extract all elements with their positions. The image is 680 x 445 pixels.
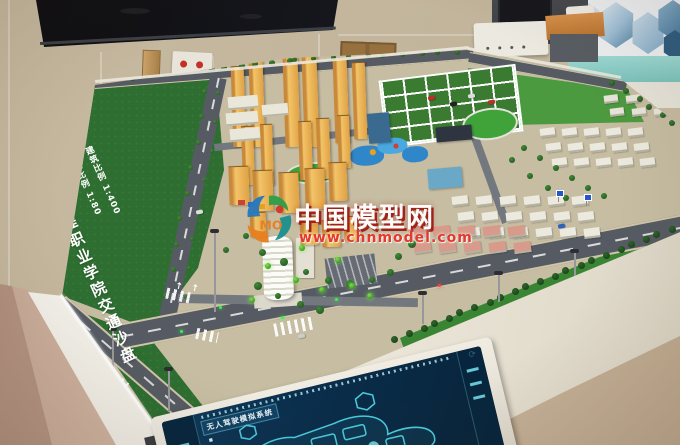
- tree: [196, 140, 201, 145]
- tree: [669, 226, 676, 233]
- tree: [316, 306, 324, 314]
- tree: [188, 165, 193, 170]
- tv-reflection: [240, 14, 262, 19]
- glass-building: [367, 112, 392, 144]
- tree: [522, 283, 529, 290]
- road-sign-blue: [584, 194, 592, 201]
- tree: [216, 91, 220, 95]
- tree: [349, 283, 355, 289]
- white-lowrise: [562, 127, 578, 138]
- tree: [259, 249, 266, 256]
- gold-tower: [352, 62, 368, 139]
- tree: [537, 278, 544, 285]
- machine-knob: [510, 46, 513, 49]
- tree: [643, 236, 650, 243]
- tree: [562, 267, 569, 274]
- street-lamp-pole: [168, 370, 170, 412]
- white-lowrise: [610, 107, 625, 117]
- white-lowrise: [618, 157, 634, 168]
- tree: [585, 185, 591, 191]
- tv-reflection: [120, 8, 150, 14]
- tree: [202, 178, 206, 182]
- tree: [623, 88, 629, 94]
- road-arrow: ↑: [190, 283, 199, 294]
- tree: [199, 114, 204, 119]
- watermark-site-url: www.chnmodel.com: [299, 230, 473, 246]
- tree: [471, 304, 478, 311]
- wall-tile-groove: [8, 0, 10, 286]
- tree: [202, 89, 207, 94]
- tree: [446, 315, 453, 322]
- pink-lowrise: [507, 225, 525, 238]
- street-lamp-head: [494, 271, 503, 275]
- tree: [249, 297, 255, 303]
- tree: [275, 293, 281, 299]
- tree: [171, 267, 176, 272]
- red-plug: [196, 61, 203, 68]
- model-car: [488, 99, 496, 104]
- white-lowrise: [568, 142, 584, 153]
- tree: [395, 253, 402, 260]
- school-building: [262, 103, 289, 117]
- photo-scene: ↑↑ 重庆电子工程职业学院交通沙盘 建筑比例 1:400 交通比例 1:80 无…: [0, 0, 680, 445]
- chnmodel-logo: MO: [240, 190, 298, 248]
- pink-lowrise: [513, 241, 531, 254]
- white-lowrise: [481, 211, 498, 223]
- tree: [325, 277, 332, 284]
- tree: [303, 269, 309, 275]
- tree: [213, 120, 217, 124]
- tree: [456, 309, 463, 316]
- white-lowrise: [535, 227, 552, 239]
- tree: [391, 336, 398, 343]
- white-lowrise: [559, 227, 576, 239]
- road-sign-blue: [556, 190, 564, 197]
- tree: [553, 165, 559, 171]
- white-lowrise: [499, 195, 516, 207]
- white-lowrise: [523, 195, 540, 207]
- traffic-light: [219, 306, 222, 309]
- school-building: [225, 111, 258, 127]
- traffic-light: [335, 298, 338, 301]
- school-building: [229, 127, 260, 143]
- tree: [387, 269, 394, 276]
- street-lamp-head: [164, 367, 173, 371]
- tree: [537, 155, 543, 161]
- model-car: [298, 333, 306, 338]
- tree: [660, 112, 666, 118]
- tree: [578, 262, 585, 269]
- right-panel-bar: [473, 394, 485, 400]
- white-lowrise: [553, 211, 570, 223]
- tree: [646, 104, 652, 110]
- tree: [223, 247, 229, 253]
- machine-knob: [522, 46, 525, 49]
- school-building: [227, 95, 258, 111]
- machine-knob: [498, 46, 501, 49]
- tree: [628, 241, 635, 248]
- pink-lowrise: [482, 225, 500, 238]
- glass-building: [435, 124, 472, 142]
- white-lowrise: [546, 142, 562, 153]
- tree: [455, 50, 460, 55]
- white-lowrise: [612, 142, 628, 153]
- white-lowrise: [634, 142, 650, 153]
- tree: [618, 246, 625, 253]
- tree: [280, 258, 288, 266]
- tree: [265, 263, 271, 269]
- white-lowrise: [529, 211, 546, 223]
- tree: [421, 325, 428, 332]
- white-lowrise: [505, 211, 522, 223]
- tree: [369, 277, 375, 283]
- tree: [487, 299, 494, 306]
- tree: [431, 320, 438, 327]
- white-lowrise: [584, 127, 600, 138]
- tree: [669, 120, 675, 126]
- white-lowrise: [475, 195, 492, 207]
- tree: [406, 330, 413, 337]
- tree: [603, 252, 610, 259]
- tree: [335, 257, 341, 263]
- right-panel-bar: [470, 381, 482, 387]
- white-lowrise: [590, 142, 606, 153]
- white-lowrise: [606, 127, 622, 138]
- street-lamp-pole: [498, 274, 500, 302]
- traffic-light: [180, 330, 183, 333]
- gold-tower: [337, 115, 351, 168]
- machine-knob: [486, 47, 489, 50]
- tree: [319, 287, 325, 293]
- tree: [521, 145, 527, 151]
- model-car: [450, 101, 458, 106]
- tree: [552, 273, 559, 280]
- tree: [653, 231, 660, 238]
- model-car: [468, 93, 476, 98]
- street-lamp-pole: [574, 252, 576, 278]
- crosswalk: [273, 316, 315, 336]
- white-lowrise: [574, 157, 590, 168]
- tree: [512, 288, 519, 295]
- street-lamp-head: [570, 249, 579, 253]
- red-plug: [180, 60, 187, 67]
- wall-tile-groove: [338, 34, 490, 36]
- tree: [601, 193, 607, 199]
- tree: [254, 282, 262, 290]
- white-lowrise: [604, 94, 619, 104]
- white-lowrise: [451, 195, 468, 207]
- console-desk-front: [550, 34, 598, 62]
- tree: [293, 277, 299, 283]
- white-lowrise: [632, 107, 647, 117]
- pink-lowrise: [488, 241, 506, 254]
- tree: [588, 257, 595, 264]
- white-lowrise: [596, 157, 612, 168]
- traffic-light: [281, 316, 284, 319]
- traffic-light: [438, 284, 441, 287]
- street-lamp-pole: [214, 232, 216, 312]
- logo-text: MO: [259, 218, 282, 233]
- white-lowrise: [577, 211, 594, 223]
- tree: [609, 80, 615, 86]
- tree: [210, 149, 214, 153]
- street-lamp-head: [210, 229, 219, 233]
- crosswalk: [195, 328, 219, 343]
- white-lowrise: [540, 127, 556, 138]
- model-car: [196, 209, 204, 214]
- white-lowrise: [628, 127, 644, 138]
- right-panel-bar: [466, 367, 478, 373]
- white-lowrise: [583, 227, 600, 239]
- street-lamp-pole: [422, 294, 424, 324]
- white-lowrise: [640, 157, 656, 168]
- tree: [509, 157, 515, 163]
- street-lamp-head: [418, 291, 427, 295]
- white-lowrise: [457, 211, 474, 223]
- tree: [174, 242, 179, 247]
- tree: [177, 216, 182, 221]
- tree: [190, 237, 194, 241]
- glass-building: [427, 167, 463, 190]
- tree: [185, 191, 190, 196]
- tree: [527, 173, 533, 179]
- tree: [637, 96, 643, 102]
- tree: [569, 175, 575, 181]
- tree: [367, 293, 373, 299]
- tree: [545, 185, 551, 191]
- tree: [187, 266, 191, 270]
- model-car: [428, 95, 436, 100]
- tree: [297, 301, 304, 308]
